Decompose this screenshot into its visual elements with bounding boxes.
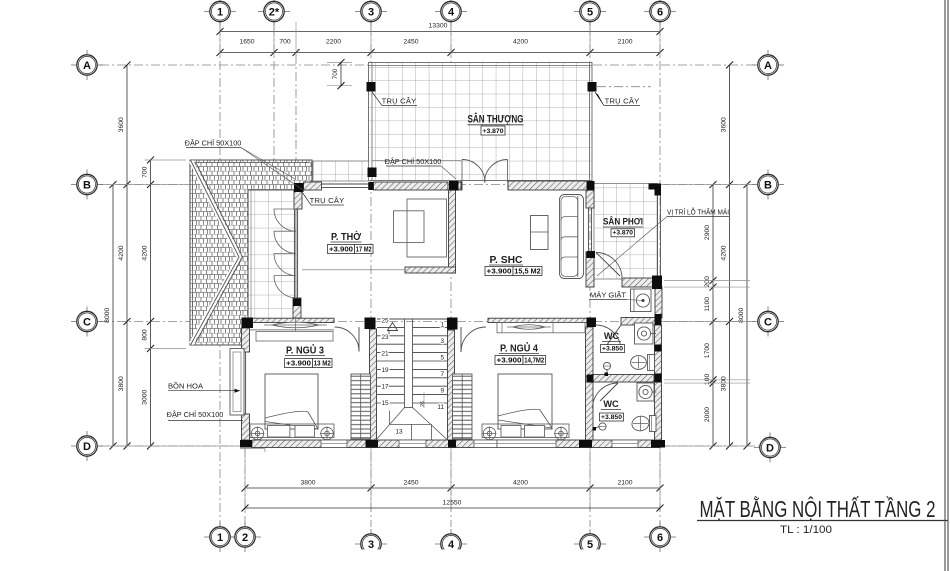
svg-text:C: C [764,316,772,328]
svg-text:4: 4 [448,539,455,551]
svg-text:TL : 1/100: TL : 1/100 [780,524,832,536]
svg-text:ĐẬP CHỈ 50X100: ĐẬP CHỈ 50X100 [167,410,224,419]
svg-text:200: 200 [704,276,711,288]
svg-text:+3.900: +3.900 [487,268,512,275]
svg-text:13300: 13300 [429,23,448,30]
svg-text:2450: 2450 [403,39,418,46]
svg-text:3800: 3800 [300,480,315,487]
svg-text:+3.900: +3.900 [286,360,311,367]
svg-text:VỊ TRÍ LỖ THĂM MÁI: VỊ TRÍ LỖ THĂM MÁI [667,208,729,217]
svg-text:9: 9 [440,388,444,395]
svg-text:MẶT BẰNG NỘI THẤT TẦNG 2: MẶT BẰNG NỘI THẤT TẦNG 2 [700,495,936,522]
svg-text:TRỤ CÂY: TRỤ CÂY [382,97,417,106]
svg-text:2000: 2000 [704,407,711,422]
svg-text:TRỤ CÂY: TRỤ CÂY [605,97,640,106]
svg-text:3800: 3800 [721,376,728,391]
svg-text:1650: 1650 [239,39,254,46]
svg-text:3: 3 [440,338,444,345]
svg-text:3: 3 [368,6,374,18]
svg-text:SÂN PHƠI: SÂN PHƠI [603,216,643,227]
svg-text:SÂN THƯỢNG: SÂN THƯỢNG [468,113,524,126]
svg-text:1700: 1700 [704,343,711,358]
svg-text:6: 6 [657,6,663,18]
svg-text:WC: WC [604,331,620,341]
svg-text:2200: 2200 [326,39,341,46]
svg-text:17 M2: 17 M2 [356,246,372,253]
svg-text:4200: 4200 [721,245,728,260]
svg-text:+3.850: +3.850 [601,414,622,421]
svg-text:3: 3 [368,539,374,551]
svg-text:15: 15 [382,400,390,407]
svg-text:B: B [764,179,772,191]
svg-text:TRỤ CÂY: TRỤ CÂY [310,196,345,205]
svg-text:6: 6 [657,532,663,544]
svg-text:15,5 M2: 15,5 M2 [514,268,541,275]
svg-text:2*: 2* [269,6,280,18]
svg-text:C: C [83,316,91,328]
svg-text:4200: 4200 [142,245,149,260]
svg-text:4200: 4200 [513,480,528,487]
svg-text:3800: 3800 [118,376,125,391]
svg-text:2: 2 [242,532,248,544]
svg-text:3000: 3000 [142,389,149,404]
svg-text:P. NGỦ 4: P. NGỦ 4 [500,343,539,355]
svg-text:P. SHC: P. SHC [490,255,523,266]
svg-text:700: 700 [279,39,291,46]
svg-text:26: 26 [420,401,426,407]
svg-text:21: 21 [382,351,390,358]
svg-text:23: 23 [382,334,390,341]
svg-text:WC: WC [603,399,619,409]
svg-text:2450: 2450 [403,480,418,487]
svg-text:+3.870: +3.870 [483,128,504,135]
svg-text:5: 5 [440,355,444,362]
svg-text:2100: 2100 [617,39,632,46]
svg-text:4200: 4200 [118,245,125,260]
svg-text:13: 13 [395,429,403,436]
svg-text:A: A [83,60,91,72]
svg-text:8000: 8000 [104,307,111,322]
svg-text:800: 800 [142,329,149,341]
svg-text:A: A [764,60,772,72]
svg-text:1100: 1100 [704,297,711,312]
svg-text:3600: 3600 [721,117,728,132]
svg-text:ĐẬP CHỈ 50X100: ĐẬP CHỈ 50X100 [385,157,442,166]
svg-text:+3.850: +3.850 [602,345,623,352]
svg-text:P. NGỦ 3: P. NGỦ 3 [286,345,325,357]
svg-text:BỒN HOA: BỒN HOA [168,381,204,391]
svg-text:5: 5 [587,539,593,551]
svg-text:14,7M2: 14,7M2 [524,357,544,364]
svg-text:7: 7 [440,371,444,378]
svg-text:+3.900: +3.900 [329,246,353,253]
svg-text:11: 11 [437,404,444,411]
svg-text:25: 25 [382,318,390,325]
svg-text:2900: 2900 [704,225,711,240]
svg-text:1: 1 [217,532,223,544]
svg-text:+3.870: +3.870 [613,230,634,237]
svg-text:3600: 3600 [118,117,125,132]
svg-text:1: 1 [440,322,444,329]
svg-text:1: 1 [217,6,223,18]
svg-text:2100: 2100 [617,480,632,487]
svg-text:17: 17 [382,384,390,391]
svg-text:+3.900: +3.900 [497,357,522,364]
svg-text:ĐẬP CHỈ 50X100: ĐẬP CHỈ 50X100 [185,139,242,148]
svg-text:D: D [766,442,774,454]
svg-text:D: D [83,441,91,453]
svg-text:4200: 4200 [513,39,528,46]
svg-text:700: 700 [332,68,339,79]
svg-text:B: B [83,179,91,191]
svg-text:4: 4 [448,6,455,18]
svg-text:P. THỜ: P. THỜ [331,231,362,243]
svg-text:8000: 8000 [738,307,745,322]
svg-text:12550: 12550 [443,500,462,507]
svg-text:MÁY GIẶT: MÁY GIẶT [590,291,627,300]
svg-text:5: 5 [587,6,593,18]
svg-text:19: 19 [382,367,390,374]
svg-text:13 M2: 13 M2 [314,360,331,367]
svg-text:700: 700 [142,166,149,178]
